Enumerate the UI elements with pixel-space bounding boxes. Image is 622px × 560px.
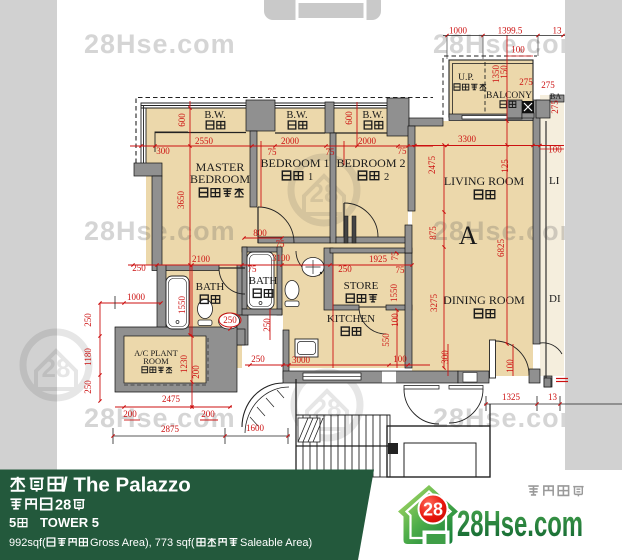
svg-text:KITCHEN: KITCHEN [327,313,375,325]
svg-text:U.P.: U.P. [458,73,474,83]
svg-text:275: 275 [519,77,533,87]
svg-text:2550: 2550 [195,136,214,146]
svg-text:2875: 2875 [161,424,180,434]
svg-text:100: 100 [390,313,400,327]
svg-text:100: 100 [505,359,515,373]
svg-text:250: 250 [338,264,352,274]
svg-text:BA: BA [550,92,561,101]
svg-text:550: 550 [381,333,391,347]
svg-text:BALCONY: BALCONY [486,91,532,101]
svg-text:125: 125 [500,159,510,173]
svg-text:1550: 1550 [389,284,399,303]
svg-text:75: 75 [326,147,336,157]
svg-text:3000: 3000 [292,355,311,365]
svg-text:ROOM: ROOM [143,356,169,366]
svg-text:75: 75 [276,239,286,249]
svg-text:A: A [459,221,478,250]
svg-text:1180: 1180 [83,348,93,366]
svg-text:250: 250 [251,354,265,364]
svg-text:LIVING ROOM: LIVING ROOM [444,174,525,188]
svg-text:250: 250 [132,263,146,273]
svg-text:2100: 2100 [192,254,211,264]
svg-text:28Hse.com: 28Hse.com [433,403,585,433]
svg-text:B.W.: B.W. [362,110,383,121]
svg-text:275: 275 [541,80,555,90]
svg-text:800: 800 [253,228,267,238]
svg-text:200: 200 [201,409,215,419]
svg-text:28Hse.com: 28Hse.com [84,29,236,59]
svg-text:1000: 1000 [127,292,146,302]
svg-text:250: 250 [83,313,93,327]
svg-text:/ The Palazzo: / The Palazzo [62,474,191,497]
svg-text:Gross Area), 773 sqf(: Gross Area), 773 sqf( [90,537,195,549]
svg-text:28: 28 [42,353,71,383]
svg-text:1600: 1600 [246,423,265,433]
svg-text:2475: 2475 [162,394,181,404]
svg-text:250: 250 [223,315,237,325]
svg-text:250: 250 [262,318,272,332]
svg-text:3275: 3275 [429,294,439,313]
svg-text:28: 28 [423,500,443,520]
svg-text:BEDROOM 1: BEDROOM 1 [260,156,329,170]
svg-text:2: 2 [384,172,389,183]
svg-text:BATH: BATH [249,275,278,287]
svg-text:2000: 2000 [358,136,377,146]
svg-text:5: 5 [9,515,16,530]
svg-text:13: 13 [548,392,558,402]
svg-text:6825: 6825 [496,239,506,258]
svg-text:B.W.: B.W. [286,110,307,121]
svg-text:BEDROOM 2: BEDROOM 2 [336,156,405,170]
svg-text:300: 300 [440,350,450,364]
svg-text:250: 250 [83,380,93,394]
svg-text:LI: LI [549,175,560,187]
svg-text:75: 75 [268,147,278,157]
svg-text:100: 100 [548,145,562,155]
svg-text:B.W.: B.W. [204,110,225,121]
svg-text:1000: 1000 [449,26,468,36]
svg-text:BATH: BATH [196,281,225,293]
svg-text:875: 875 [428,226,438,240]
svg-text:100: 100 [511,45,525,55]
svg-text:992sqf(: 992sqf( [9,537,46,549]
svg-text:75: 75 [396,265,406,275]
svg-text:1230: 1230 [179,355,189,374]
svg-text:300: 300 [156,146,170,156]
svg-text:Saleable Area): Saleable Area) [240,537,312,549]
svg-text:TOWER 5: TOWER 5 [40,515,99,530]
svg-text:100: 100 [393,354,407,364]
svg-text:1925: 1925 [369,254,388,264]
svg-text:13: 13 [553,26,563,36]
svg-text:28Hse.com: 28Hse.com [433,216,585,246]
svg-text:DI: DI [549,293,561,305]
svg-text:STORE: STORE [344,280,379,292]
svg-text:28: 28 [55,498,71,514]
svg-text:2000: 2000 [281,136,300,146]
svg-text:1325: 1325 [502,392,521,402]
svg-text:600: 600 [177,113,187,127]
svg-text:600: 600 [344,111,354,125]
svg-text:BEDROOM: BEDROOM [190,172,250,186]
svg-text:150: 150 [499,65,509,79]
svg-text:3300: 3300 [458,134,477,144]
svg-text:1: 1 [308,172,313,183]
svg-text:1550: 1550 [177,296,187,315]
svg-text:200: 200 [191,365,201,379]
svg-text:75: 75 [390,251,400,261]
svg-text:3650: 3650 [176,191,186,210]
svg-text:75: 75 [248,264,258,274]
svg-text:28Hse.com: 28Hse.com [457,503,583,544]
svg-text:75: 75 [398,146,408,156]
svg-text:275: 275 [550,100,560,114]
svg-text:1399.5: 1399.5 [498,26,523,36]
svg-text:200: 200 [123,409,137,419]
svg-text:2475: 2475 [427,156,437,175]
svg-text:DINING ROOM: DINING ROOM [443,293,525,307]
svg-text:3100: 3100 [272,253,291,263]
